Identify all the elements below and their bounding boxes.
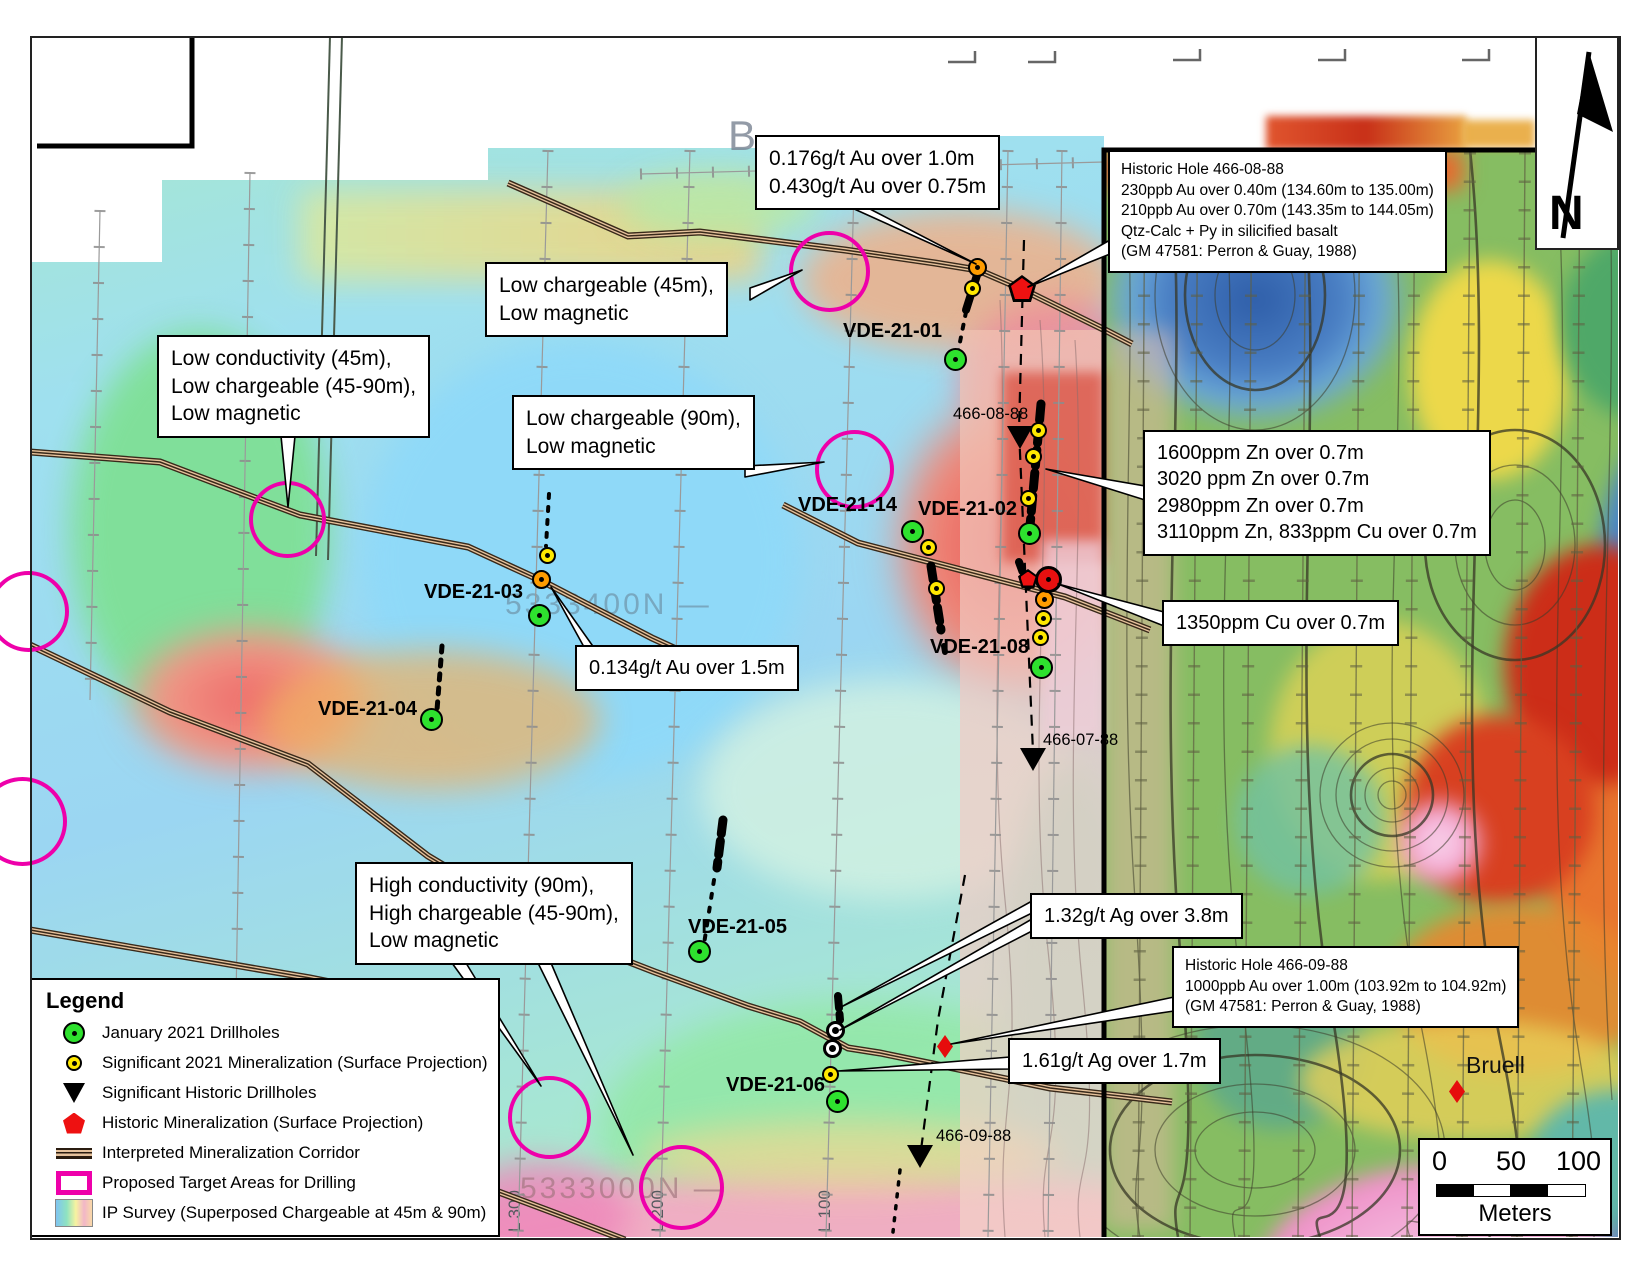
scale-tick-100: 100 [1556,1146,1601,1177]
legend-item-drillholes: January 2021 Drillholes [32,1018,498,1048]
historic-mineralization-pentagon-icon [46,1113,102,1134]
callout-line: 1.61g/t Ag over 1.7m [1022,1048,1207,1074]
callout-low-conductivity: Low conductivity (45m), Low chargeable (… [157,335,430,438]
callout-line: Low magnetic [369,927,619,955]
ip-survey-swatch-icon [46,1199,102,1227]
callout-line: 1.32g/t Ag over 3.8m [1044,903,1229,929]
scale-bar: 0 50 100 Meters [1418,1138,1612,1236]
callout-au-mid: 0.134g/t Au over 1.5m [575,645,799,691]
callout-line: 1350ppm Cu over 0.7m [1176,610,1385,636]
legend-item-label: Proposed Target Areas for Drilling [102,1173,356,1193]
callout-ag-result-1: 1.32g/t Ag over 3.8m [1030,893,1243,939]
callout-line: 1000ppb Au over 1.00m (103.92m to 104.92… [1185,977,1506,998]
legend-item-target-areas: Proposed Target Areas for Drilling [32,1168,498,1198]
exploration-map: 5333400N — 5333000N — L 300 L 200 L 100 … [0,0,1649,1274]
legend-item-label: January 2021 Drillholes [102,1023,280,1043]
callout-line: Qtz-Calc + Py in silicified basalt [1121,222,1434,243]
callout-line: Low chargeable (90m), [526,405,741,433]
callout-line: 0.176g/t Au over 1.0m [769,145,986,173]
callout-zn-results: 1600ppm Zn over 0.7m 3020 ppm Zn over 0.… [1143,430,1491,556]
callout-line: Historic Hole 466-08-88 [1121,160,1434,181]
callout-line: Low magnetic [526,433,741,461]
callout-line: Low magnetic [171,400,416,428]
legend-item-label: Interpreted Mineralization Corridor [102,1143,360,1163]
callout-line: High conductivity (90m), [369,872,619,900]
legend-item-label: IP Survey (Superposed Chargeable at 45m … [102,1203,486,1223]
legend-item-ip-survey: IP Survey (Superposed Chargeable at 45m … [32,1198,498,1228]
callout-historic-466-08-88: Historic Hole 466-08-88 230ppb Au over 0… [1108,150,1447,273]
callout-low-chargeable-90: Low chargeable (90m), Low magnetic [512,395,755,470]
legend-item-mineralization: Significant 2021 Mineralization (Surface… [32,1048,498,1078]
historic-drillhole-triangle-icon [46,1083,102,1103]
callout-line: 2980ppm Zn over 0.7m [1157,493,1477,519]
legend-item-label: Historic Mineralization (Surface Project… [102,1113,423,1133]
callout-line: 230ppb Au over 0.40m (134.60m to 135.00m… [1121,181,1434,202]
callout-line: Low conductivity (45m), [171,345,416,373]
scale-tick-50: 50 [1496,1146,1526,1177]
legend-item-corridor: Interpreted Mineralization Corridor [32,1138,498,1168]
callout-historic-466-09-88: Historic Hole 466-09-88 1000ppb Au over … [1172,946,1519,1028]
claim-post-marks [948,49,1489,62]
scale-unit-label: Meters [1420,1200,1610,1228]
callout-line: 0.430g/t Au over 0.75m [769,173,986,201]
scale-tick-0: 0 [1432,1146,1447,1177]
yellow-mineralization-icon [46,1055,102,1071]
callout-line: 1600ppm Zn over 0.7m [1157,440,1477,466]
callout-line: (GM 47581: Perron & Guay, 1988) [1185,997,1506,1018]
callout-line: Low chargeable (45-90m), [171,373,416,401]
corridor-lines-icon [46,1148,102,1159]
callout-line: High chargeable (45-90m), [369,900,619,928]
callout-line: 3110ppm Zn, 833ppm Cu over 0.7m [1157,519,1477,545]
legend-item-historic-drillholes: Significant Historic Drillholes [32,1078,498,1108]
callout-line: Low magnetic [499,300,714,328]
callout-line: 210ppb Au over 0.70m (143.35m to 144.05m… [1121,201,1434,222]
callout-line: Historic Hole 466-09-88 [1185,956,1506,977]
claim-boundary-line [37,36,192,146]
green-drillhole-icon [46,1022,102,1044]
callout-line: (GM 47581: Perron & Guay, 1988) [1121,242,1434,263]
north-arrow-box: N [1535,36,1619,250]
callout-cu-result: 1350ppm Cu over 0.7m [1162,600,1399,646]
legend-title: Legend [46,988,498,1014]
callout-line: 3020 ppm Zn over 0.7m [1157,466,1477,492]
scale-bar-segments [1436,1184,1586,1197]
north-letter: N [1549,186,1584,241]
legend-item-label: Significant 2021 Mineralization (Surface… [102,1053,488,1073]
callout-line: 0.134g/t Au over 1.5m [589,655,785,681]
callout-au-top: 0.176g/t Au over 1.0m 0.430g/t Au over 0… [755,135,1000,210]
callout-ag-result-2: 1.61g/t Ag over 1.7m [1008,1038,1221,1084]
legend-box: Legend January 2021 Drillholes Significa… [30,978,500,1237]
callout-line: Low chargeable (45m), [499,272,714,300]
legend-item-label: Significant Historic Drillholes [102,1083,316,1103]
callout-low-chargeable-45: Low chargeable (45m), Low magnetic [485,262,728,337]
callout-high-conductivity: High conductivity (90m), High chargeable… [355,862,633,965]
target-area-icon [46,1171,102,1195]
legend-item-historic-mineralization: Historic Mineralization (Surface Project… [32,1108,498,1138]
